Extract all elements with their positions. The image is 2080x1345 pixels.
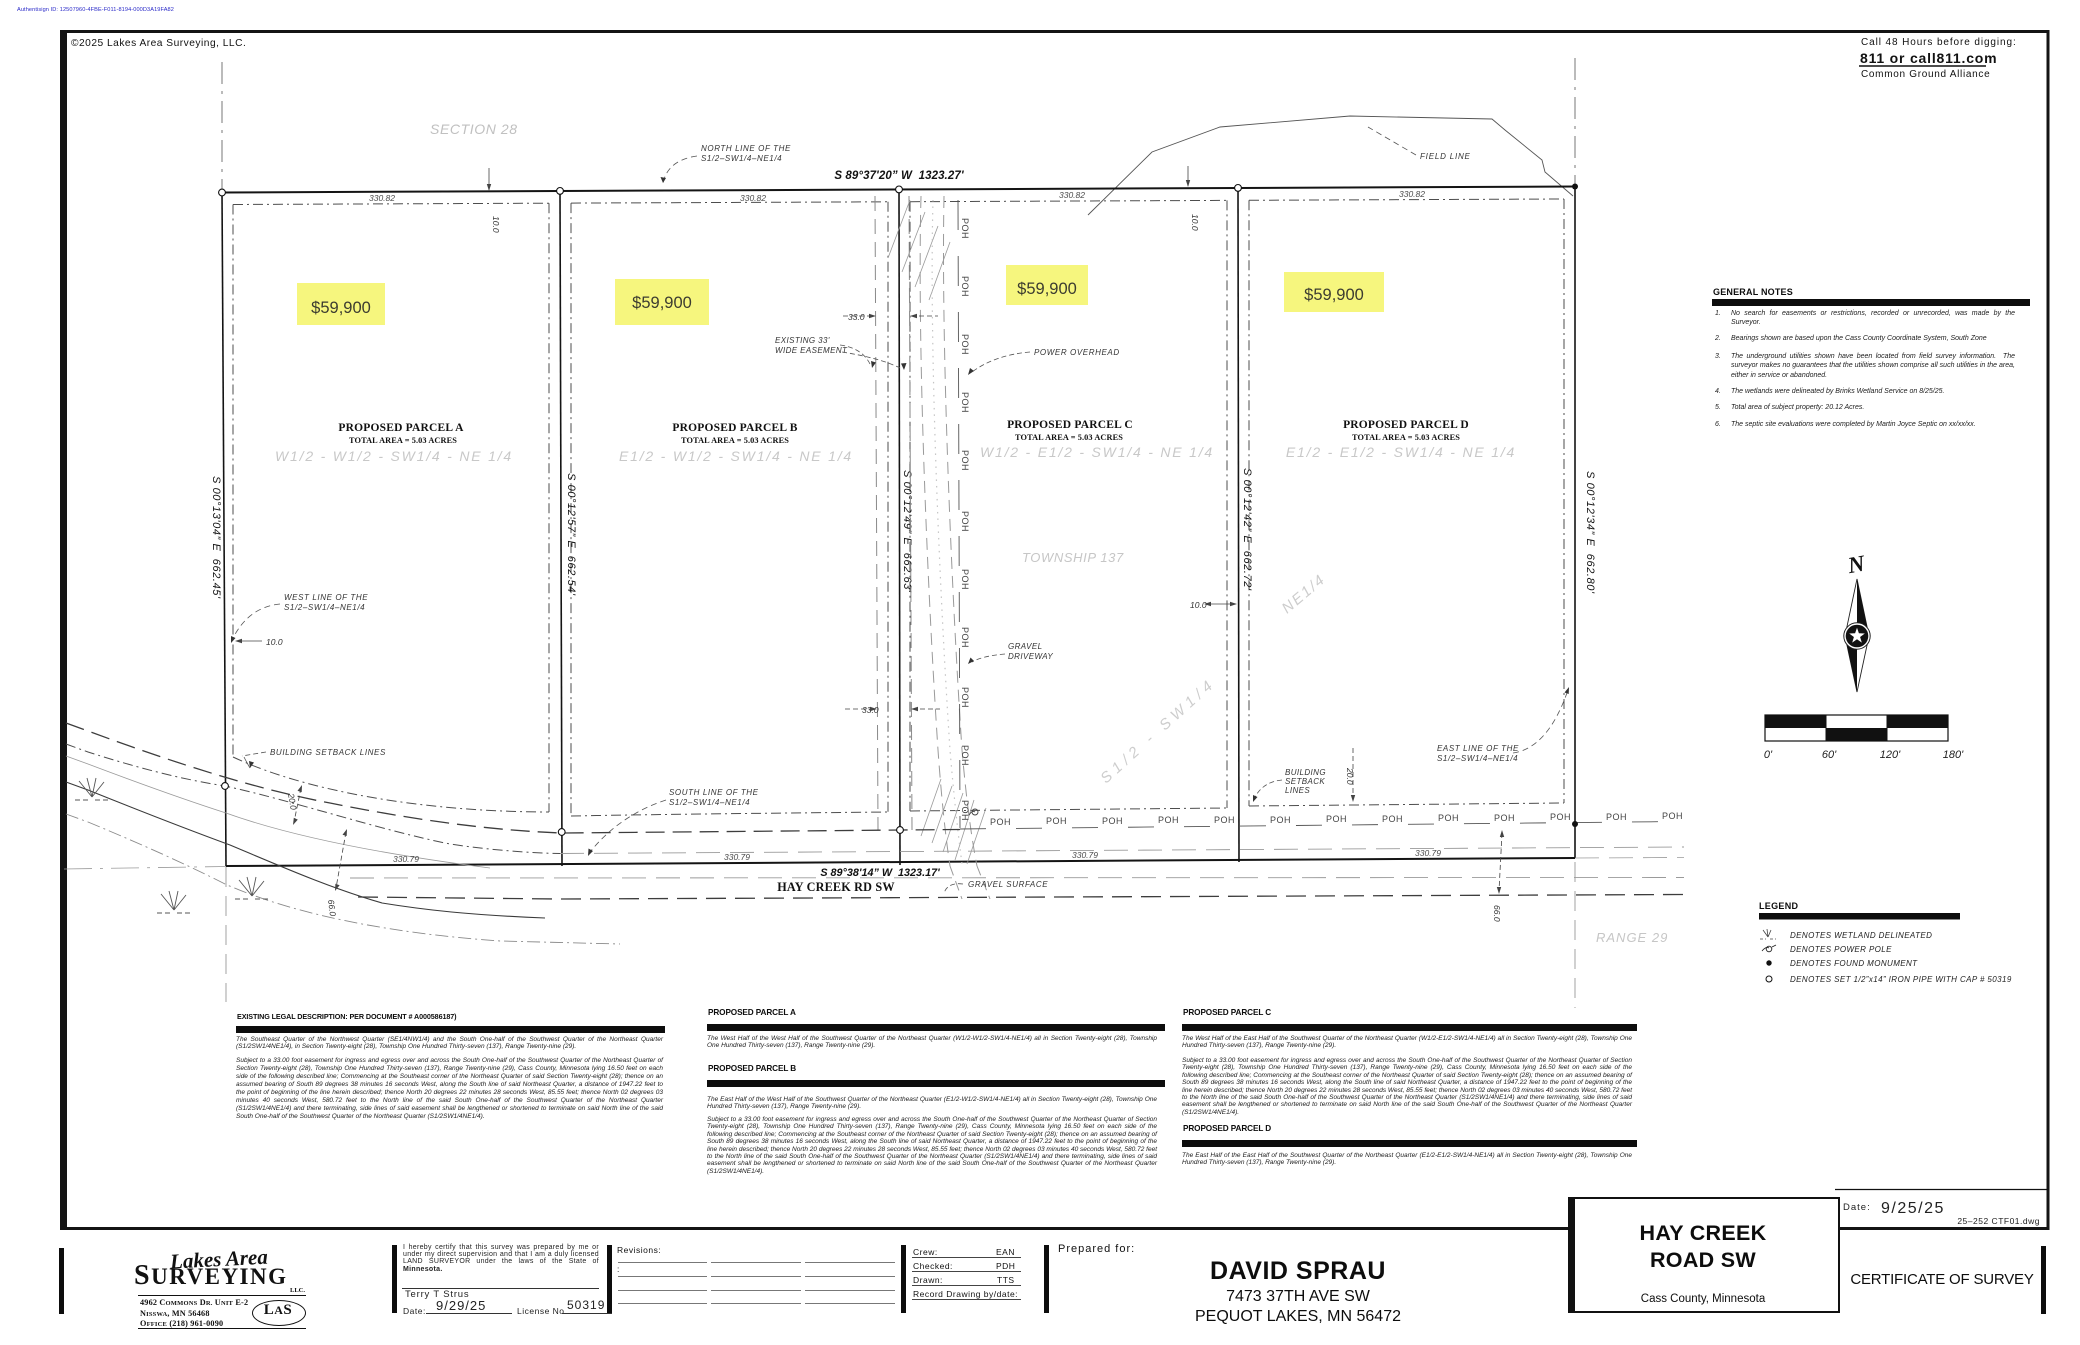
svg-text:120': 120' [1880,749,1901,761]
svg-text:DRIVEWAY: DRIVEWAY [1008,652,1053,661]
svg-text:POH: POH [1046,816,1067,826]
svg-text:POH: POH [960,745,970,766]
svg-text:PROPOSED PARCEL A: PROPOSED PARCEL A [338,422,464,434]
svg-text:NORTH LINE OF THE: NORTH LINE OF THE [701,144,791,153]
svg-text:POH: POH [960,450,970,471]
svg-text:RANGE 29: RANGE 29 [1596,930,1668,945]
svg-text:330.82: 330.82 [1399,189,1425,199]
svg-text:S1/2–SW1/4–NE1/4: S1/2–SW1/4–NE1/4 [284,603,365,612]
svg-text:BUILDING: BUILDING [1285,768,1326,777]
svg-text:FIELD LINE: FIELD LINE [1420,152,1471,161]
svg-text:POH: POH [1438,813,1459,823]
svg-text:S 89°38'14” W 1323.17': S 89°38'14” W 1323.17' [820,867,940,879]
svg-text:Common Ground Alliance: Common Ground Alliance [1861,69,1990,80]
svg-text:POH: POH [960,800,970,821]
svg-text:POH: POH [1606,812,1627,822]
svg-text:DENOTES WETLAND DELINEATED: DENOTES WETLAND DELINEATED [1790,931,1932,940]
svg-text:330.79: 330.79 [393,854,419,864]
svg-text:POH: POH [1494,813,1515,823]
svg-text:$59,900: $59,900 [311,299,371,317]
svg-text:PROPOSED PARCEL C: PROPOSED PARCEL C [1007,419,1133,431]
svg-text:330.82: 330.82 [1059,190,1085,200]
svg-text:0': 0' [1764,749,1773,761]
svg-text:DENOTES SET 1/2”x14” IRON PIPE: DENOTES SET 1/2”x14” IRON PIPE WITH CAP … [1790,975,2012,984]
svg-text:10.0: 10.0 [266,637,283,647]
svg-text:20.0: 20.0 [286,792,299,811]
svg-text:DENOTES POWER POLE: DENOTES POWER POLE [1790,945,1892,954]
svg-text:NE1/4: NE1/4 [1279,571,1330,617]
svg-text:S 89°37'20” W 1323.27': S 89°37'20” W 1323.27' [834,170,965,182]
svg-text:66.0: 66.0 [1492,905,1502,922]
svg-text:811 or call811.com: 811 or call811.com [1860,50,1997,66]
svg-text:S1/2–SW1/4–NE1/4: S1/2–SW1/4–NE1/4 [1437,754,1518,763]
svg-text:EAST LINE OF THE: EAST LINE OF THE [1437,744,1519,753]
svg-text:TOWNSHIP 137: TOWNSHIP 137 [1022,550,1124,565]
svg-text:S1/2–SW1/4–NE1/4: S1/2–SW1/4–NE1/4 [701,154,782,163]
svg-text:LEGEND: LEGEND [1759,901,1799,911]
svg-text:WEST LINE OF THE: WEST LINE OF THE [284,593,368,602]
svg-text:EXISTING 33': EXISTING 33' [775,336,830,345]
svg-text:330.79: 330.79 [724,852,750,862]
svg-text:POH: POH [1158,815,1179,825]
svg-text:W1/2 - E1/2 - SW1/4 - NE 1/4: W1/2 - E1/2 - SW1/4 - NE 1/4 [980,444,1214,460]
svg-text:POH: POH [960,569,970,590]
svg-text:POH: POH [960,511,970,532]
svg-text:SECTION 28: SECTION 28 [430,121,518,137]
svg-text:9/25/25: 9/25/25 [1881,1200,1945,1217]
svg-text:HAY CREEK RD SW: HAY CREEK RD SW [777,880,895,894]
svg-text:LINES: LINES [1285,786,1310,795]
svg-text:60': 60' [1822,749,1837,761]
svg-text:DENOTES FOUND MONUMENT: DENOTES FOUND MONUMENT [1790,959,1918,968]
svg-text:TOTAL AREA = 5.03 ACRES: TOTAL AREA = 5.03 ACRES [1352,433,1460,442]
svg-text:POH: POH [1214,815,1235,825]
svg-text:20.0: 20.0 [1345,767,1355,785]
svg-text:POH: POH [1550,812,1571,822]
svg-text:S 00°12'57” E 662.54': S 00°12'57” E 662.54' [565,473,577,596]
svg-text:POH: POH [960,687,970,708]
svg-text:TOTAL AREA = 5.03 ACRES: TOTAL AREA = 5.03 ACRES [681,436,789,445]
svg-text:PROPOSED PARCEL D: PROPOSED PARCEL D [1343,419,1469,431]
svg-text:SOUTH LINE OF THE: SOUTH LINE OF THE [669,788,759,797]
svg-text:330.79: 330.79 [1415,848,1441,858]
svg-text:S1/2–SW1/4–NE1/4: S1/2–SW1/4–NE1/4 [669,798,750,807]
svg-text:Date:: Date: [1843,1202,1871,1213]
svg-text:S 00°12'34” E 662.80': S 00°12'34” E 662.80' [1584,471,1596,594]
svg-text:66.0: 66.0 [326,899,338,917]
svg-text:$59,900: $59,900 [1017,280,1077,298]
svg-text:$59,900: $59,900 [1304,286,1364,304]
svg-text:POH: POH [990,817,1011,827]
svg-text:POWER OVERHEAD: POWER OVERHEAD [1034,348,1120,357]
svg-text:N: N [1845,550,1868,578]
svg-text:330.82: 330.82 [369,193,395,203]
svg-text:TOTAL AREA = 5.03 ACRES: TOTAL AREA = 5.03 ACRES [1015,433,1123,442]
svg-text:POH: POH [1662,811,1683,821]
svg-text:E1/2 - W1/2 - SW1/4 - NE 1/4: E1/2 - W1/2 - SW1/4 - NE 1/4 [619,448,853,464]
svg-text:POH: POH [960,334,970,355]
svg-text:S 00°13'04” E 662.45': S 00°13'04” E 662.45' [210,476,222,599]
svg-text:180': 180' [1943,749,1964,761]
svg-text:33.0: 33.0 [848,312,865,322]
svg-text:POH: POH [960,627,970,648]
svg-text:TOTAL AREA = 5.03 ACRES: TOTAL AREA = 5.03 ACRES [349,436,457,445]
svg-text:POH: POH [960,276,970,297]
svg-text:SETBACK: SETBACK [1285,777,1325,786]
svg-text:10.0: 10.0 [1190,600,1207,610]
svg-text:330.79: 330.79 [1072,850,1098,860]
svg-text:10.0: 10.0 [1190,214,1200,231]
svg-text:S 00°12'42” E 662.72': S 00°12'42” E 662.72' [1241,468,1253,591]
svg-text:PROPOSED PARCEL B: PROPOSED PARCEL B [672,422,797,434]
svg-text:W1/2 - W1/2 - SW1/4 - NE 1/4: W1/2 - W1/2 - SW1/4 - NE 1/4 [275,448,513,464]
svg-text:POH: POH [960,218,970,239]
svg-text:WIDE EASEMENT: WIDE EASEMENT [775,346,848,355]
svg-text:GRAVEL SURFACE: GRAVEL SURFACE [968,880,1048,889]
svg-text:©2025 Lakes Area Surveying, LL: ©2025 Lakes Area Surveying, LLC. [71,38,246,49]
svg-text:S1/2 - SW1/4: S1/2 - SW1/4 [1097,675,1219,787]
svg-text:GRAVEL: GRAVEL [1008,642,1042,651]
svg-text:POH: POH [1102,816,1123,826]
svg-text:POH: POH [960,392,970,413]
svg-text:POH: POH [1326,814,1347,824]
svg-text:330.82: 330.82 [740,193,766,203]
svg-text:$59,900: $59,900 [632,294,692,312]
svg-text:Call 48 Hours before digging:: Call 48 Hours before digging: [1861,37,2017,48]
svg-text:10.0: 10.0 [491,216,501,233]
svg-text:25–252 CTF01.dwg: 25–252 CTF01.dwg [1957,1216,2040,1226]
svg-text:E1/2 - E1/2 - SW1/4 - NE 1/4: E1/2 - E1/2 - SW1/4 - NE 1/4 [1286,444,1516,460]
svg-text:BUILDING SETBACK LINES: BUILDING SETBACK LINES [270,748,386,757]
svg-text:POH: POH [1270,815,1291,825]
svg-text:POH: POH [1382,814,1403,824]
